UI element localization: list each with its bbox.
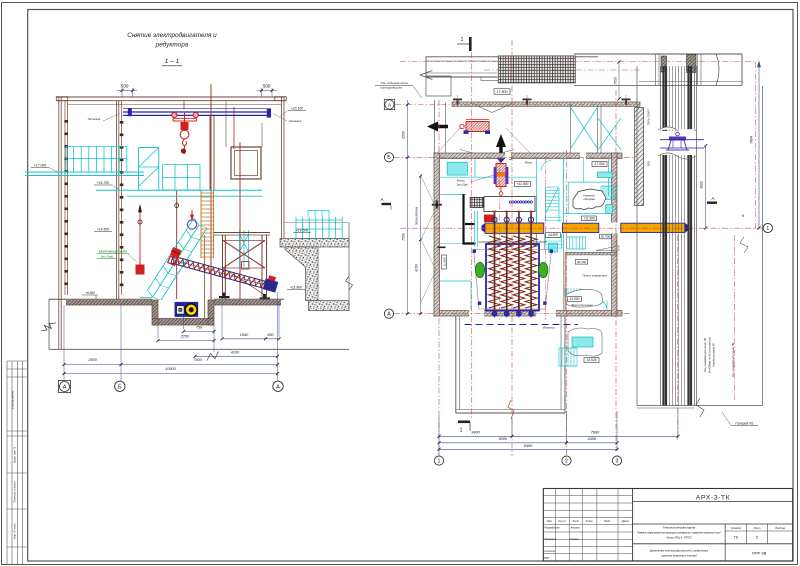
svg-text:Комната: Комната bbox=[583, 194, 595, 198]
svg-text:Затяжка: Затяжка bbox=[289, 119, 302, 123]
svg-text:17.500: 17.500 bbox=[594, 162, 604, 166]
svg-text:3400: 3400 bbox=[471, 431, 480, 435]
svg-text:+17.000: +17.000 bbox=[34, 164, 46, 168]
svg-text:Инв. N подл.: Инв. N подл. bbox=[13, 523, 17, 540]
svg-text:Разработал: Разработал bbox=[545, 526, 561, 530]
svg-text:Н.контр.: Н.контр. bbox=[545, 549, 556, 553]
svg-text:А: А bbox=[276, 384, 280, 390]
svg-text:Монорельс: Монорельс bbox=[543, 327, 556, 330]
svg-text:Пульт оператора: Пульт оператора bbox=[582, 274, 607, 278]
svg-text:8400: 8400 bbox=[524, 444, 533, 448]
svg-text:обогрева: обогрева bbox=[583, 197, 595, 201]
svg-text:14.645: 14.645 bbox=[586, 358, 596, 362]
svg-text:7890: 7890 bbox=[591, 431, 600, 435]
svg-text:4100: 4100 bbox=[415, 264, 419, 272]
svg-text:1940: 1940 bbox=[240, 333, 249, 337]
svg-text:7500: 7500 bbox=[402, 233, 406, 241]
svg-text:2: 2 bbox=[565, 458, 568, 464]
svg-text:ППР 4В: ППР 4В bbox=[752, 551, 767, 556]
svg-text:700 в 1500**: 700 в 1500** bbox=[647, 108, 651, 126]
svg-text:(д/г 2(м)): (д/г 2(м)) bbox=[101, 255, 114, 259]
svg-text:+20.100: +20.100 bbox=[291, 107, 303, 111]
svg-text:5: 5 bbox=[756, 536, 758, 540]
svg-text:N док.: N док. bbox=[586, 519, 594, 523]
svg-text:Листов: Листов bbox=[774, 526, 785, 530]
svg-text:Галерея N1: Галерея N1 bbox=[735, 422, 753, 426]
svg-text:Акимов: Акимов bbox=[570, 526, 581, 530]
svg-text:А: А bbox=[63, 384, 67, 390]
svg-text:Взам. инв. N: Взам. инв. N bbox=[13, 446, 17, 463]
svg-text:2500: 2500 bbox=[87, 358, 97, 362]
svg-text:Дата: Дата bbox=[621, 519, 629, 523]
svg-text:АРХ-3-ТК: АРХ-3-ТК bbox=[696, 494, 731, 501]
svg-text:1: 1 bbox=[461, 37, 464, 43]
svg-text:2400: 2400 bbox=[587, 437, 597, 441]
svg-text:+14.500: +14.500 bbox=[97, 228, 109, 232]
svg-text:+6.500: +6.500 bbox=[85, 291, 95, 295]
svg-text:Кол.уч.: Кол.уч. bbox=[559, 520, 567, 523]
svg-text:Лист: Лист bbox=[753, 526, 762, 530]
svg-text:Технологическая карта: Технологическая карта bbox=[663, 525, 696, 529]
svg-text:боковых роликов 30: боковых роликов 30 bbox=[713, 343, 716, 367]
svg-text:7000: 7000 bbox=[614, 77, 618, 85]
svg-text:"Замена гидротранспортирующего: "Замена гидротранспортирующего аппарата … bbox=[637, 531, 722, 534]
svg-text:1 – 1: 1 – 1 bbox=[165, 58, 180, 65]
svg-text:4000: 4000 bbox=[700, 181, 704, 189]
svg-text:Стадия: Стадия bbox=[731, 526, 742, 530]
svg-text:Вентиляционная: Вентиляционная bbox=[571, 303, 593, 307]
svg-text:2500: 2500 bbox=[402, 131, 406, 140]
svg-text:Снятие электродвигателя и: Снятие электродвигателя и bbox=[127, 31, 217, 39]
svg-text:+14.500: +14.500 bbox=[296, 229, 308, 233]
svg-text:Минск ЛПЦ-3, ЧПТКЗ: Минск ЛПЦ-3, ЧПТКЗ bbox=[667, 536, 692, 539]
svg-text:36.700: 36.700 bbox=[601, 235, 611, 239]
svg-text:+16.700: +16.700 bbox=[97, 181, 109, 185]
svg-text:Согласовано: Согласовано bbox=[11, 391, 15, 410]
svg-text:1к/п 2(м): 1к/п 2(м) bbox=[456, 183, 467, 187]
svg-text:Изм.: Изм. bbox=[547, 519, 553, 523]
svg-text:500: 500 bbox=[263, 84, 271, 89]
svg-text:36.700: 36.700 bbox=[577, 260, 587, 264]
svg-text:сортировщика: сортировщика bbox=[380, 86, 402, 90]
svg-text:11.500: 11.500 bbox=[442, 257, 446, 266]
svg-text:3: 3 bbox=[616, 458, 619, 464]
svg-text:ГИП: ГИП bbox=[544, 556, 549, 560]
svg-text:+11.900: +11.900 bbox=[583, 216, 595, 220]
svg-text:2250: 2250 bbox=[180, 335, 190, 339]
svg-text:Ось конвейерной линии N6: Ось конвейерной линии N6 bbox=[703, 337, 707, 372]
svg-text:11.500: 11.500 bbox=[570, 297, 580, 301]
svg-text:+11.800: +11.800 bbox=[290, 286, 302, 290]
svg-text:14.500: 14.500 bbox=[548, 233, 558, 237]
svg-text:Затяжка: Затяжка bbox=[88, 117, 101, 121]
svg-text:редуктора: редуктора bbox=[155, 41, 189, 49]
svg-text:+11.800: +11.800 bbox=[516, 182, 528, 186]
svg-text:4100: 4100 bbox=[231, 351, 240, 355]
svg-text:10000: 10000 bbox=[165, 367, 176, 371]
svg-text:В=1000мм, в=10, угол наклона: В=1000мм, в=10, угол наклона bbox=[709, 336, 712, 372]
svg-text:Лист: Лист bbox=[571, 519, 580, 523]
svg-text:привода зажимных клещей: привода зажимных клещей bbox=[661, 554, 697, 558]
svg-text:Ось подъема мола: Ось подъема мола bbox=[380, 81, 407, 85]
svg-text:1: 1 bbox=[766, 226, 769, 232]
svg-text:А: А bbox=[387, 312, 391, 318]
svg-text:7894: 7894 bbox=[750, 136, 754, 144]
svg-text:1: 1 bbox=[438, 458, 441, 464]
svg-text:Демонтаж электродвигателя и ре: Демонтаж электродвигателя и редуктора bbox=[649, 549, 708, 553]
svg-text:Подпись и дата: Подпись и дата bbox=[13, 481, 17, 503]
svg-text:Б: Б bbox=[118, 384, 122, 390]
svg-text:1: 1 bbox=[460, 428, 463, 434]
svg-text:Монтажная скоба: Монтажная скоба bbox=[99, 250, 127, 254]
svg-text:6000: 6000 bbox=[499, 437, 508, 441]
svg-text:Подп.: Подп. bbox=[604, 519, 611, 523]
svg-text:750: 750 bbox=[196, 326, 203, 330]
svg-text:300: 300 bbox=[647, 161, 651, 166]
svg-text:Казань: Казань bbox=[571, 537, 580, 541]
svg-text:17.800: 17.800 bbox=[497, 90, 508, 94]
svg-text:7500: 7500 bbox=[193, 358, 202, 362]
svg-text:600: 600 bbox=[267, 333, 274, 337]
svg-text:Проверил: Проверил bbox=[545, 537, 557, 541]
svg-text:500: 500 bbox=[121, 84, 129, 89]
svg-text:Мосн: Мосн bbox=[525, 161, 533, 165]
svg-text:3000х3000(h): 3000х3000(h) bbox=[415, 207, 419, 226]
svg-text:Б: Б bbox=[387, 155, 391, 161]
svg-text:Ось конвейерной линии N9: Ось конвейерной линии N9 bbox=[731, 342, 735, 377]
